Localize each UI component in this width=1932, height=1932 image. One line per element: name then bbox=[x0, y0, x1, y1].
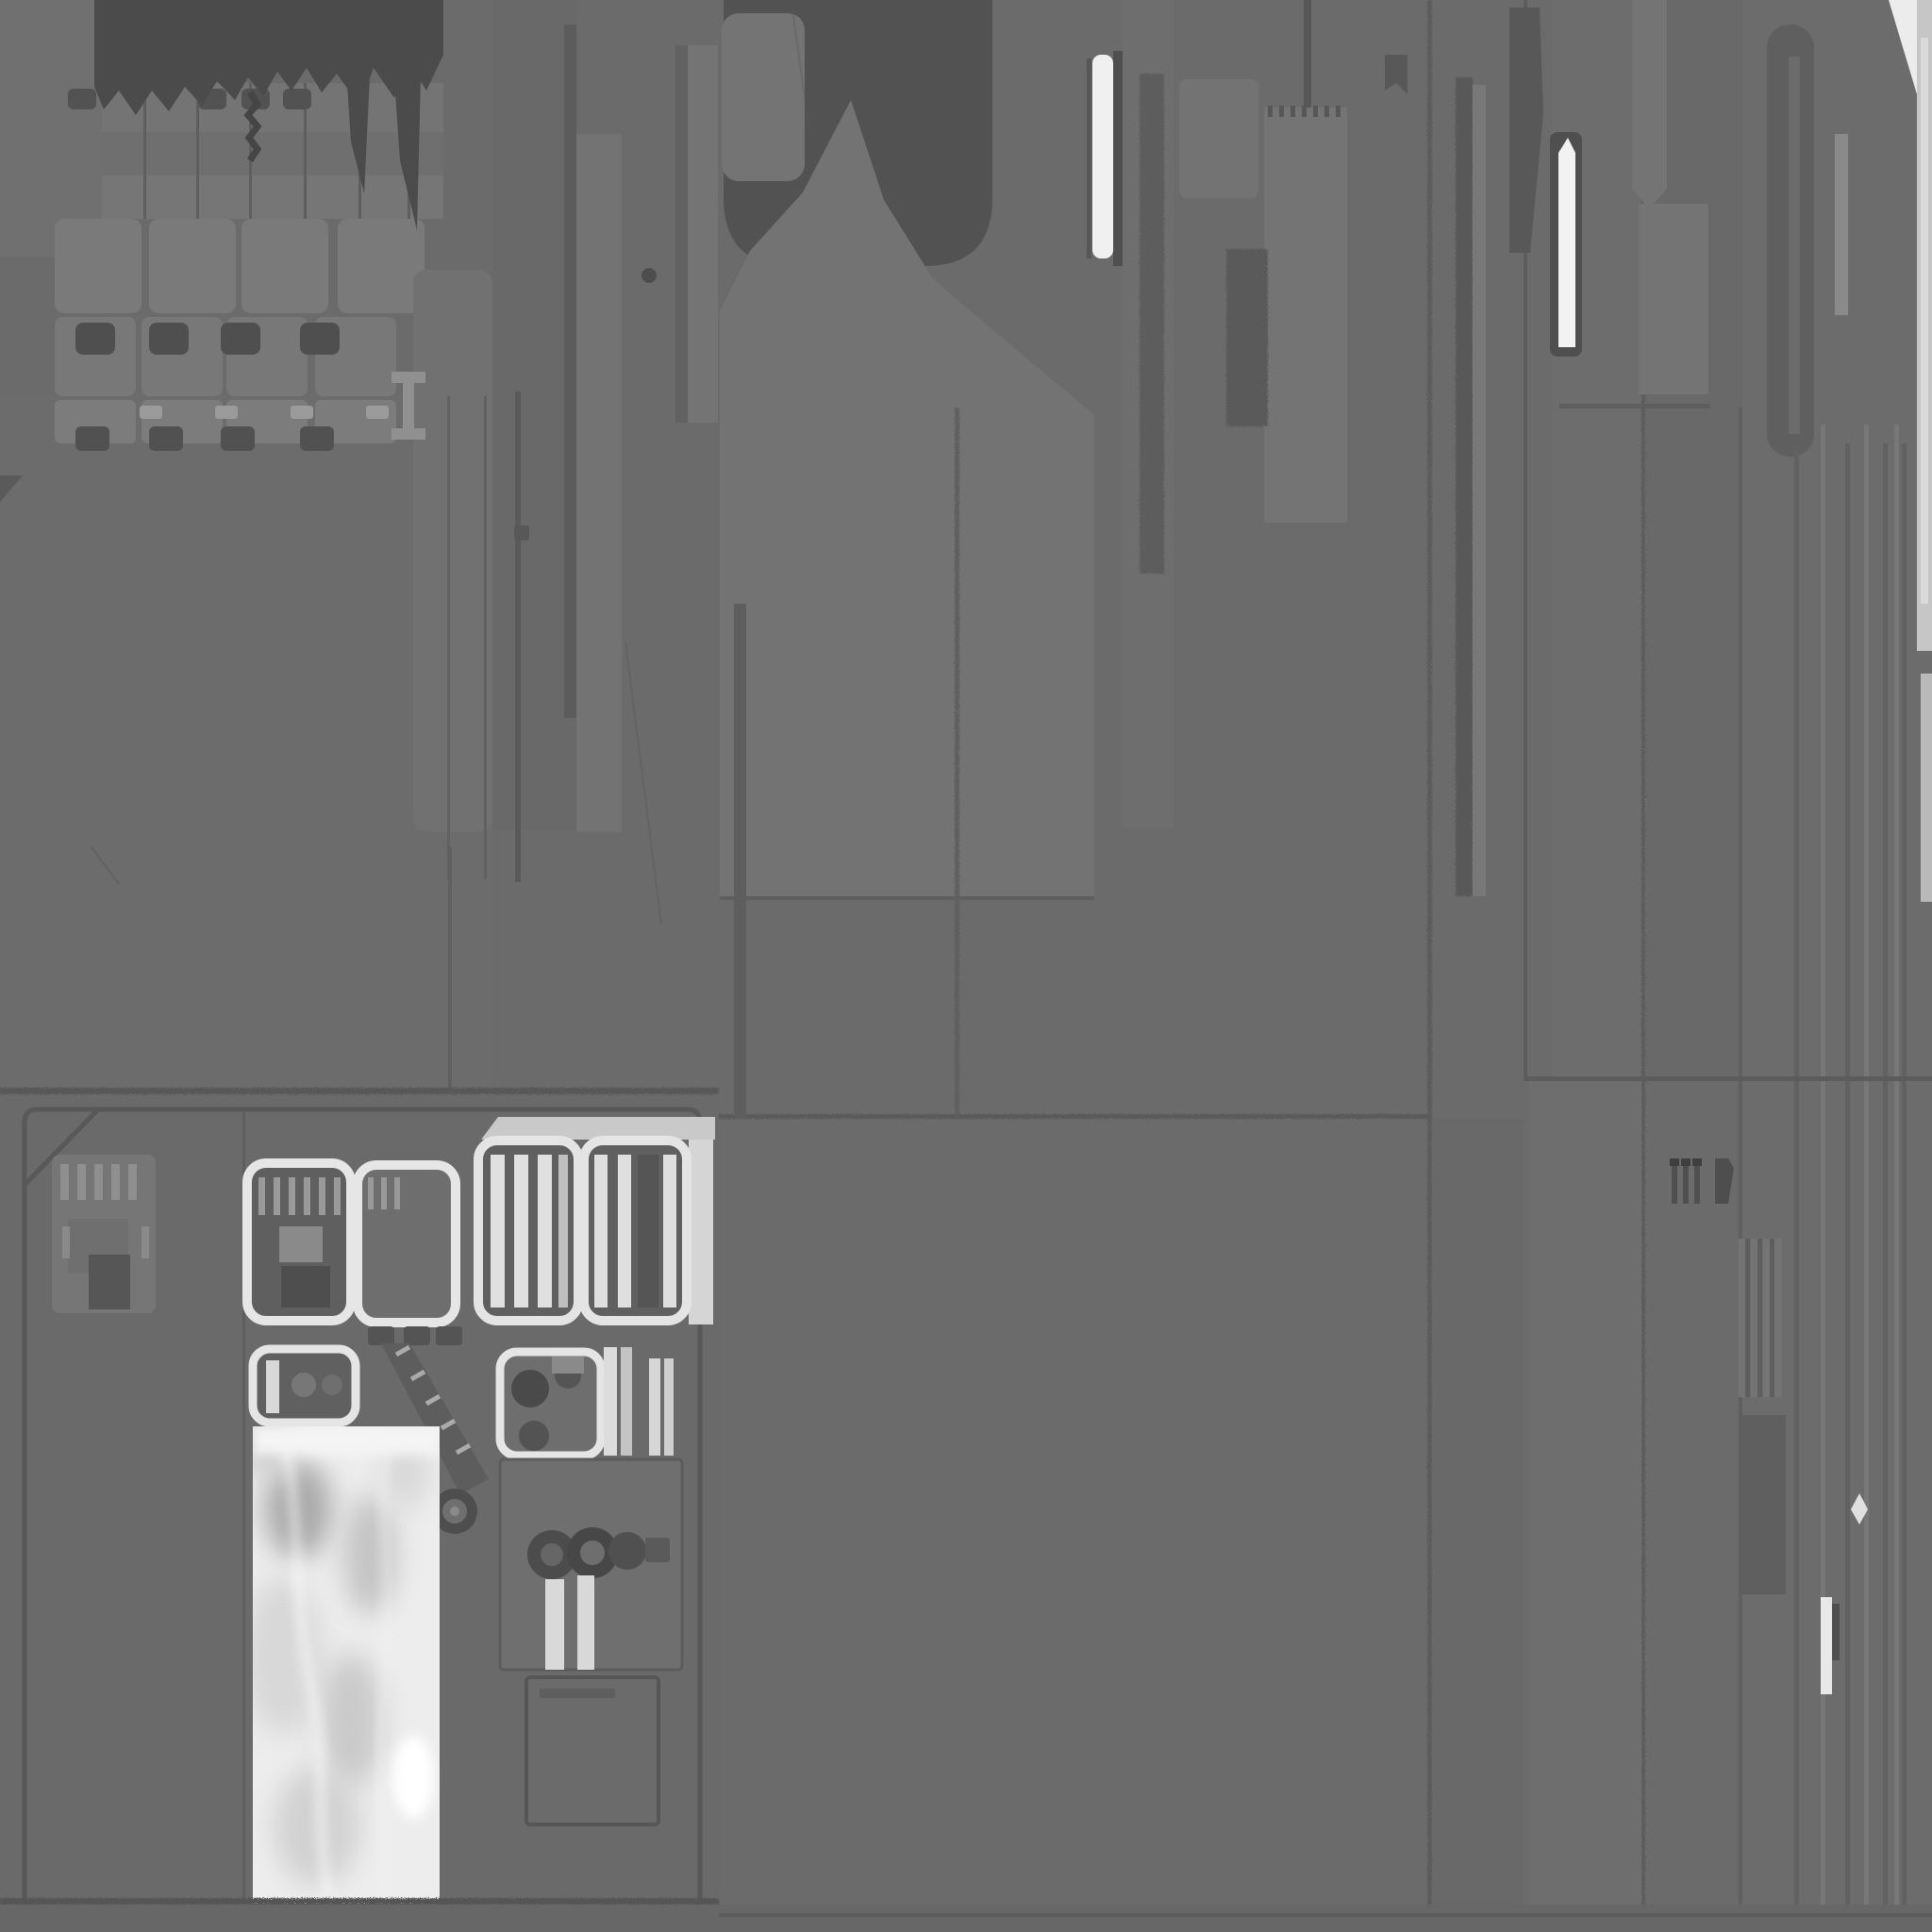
light-column-729 bbox=[688, 45, 718, 423]
flame-blob-3 bbox=[243, 1577, 323, 1736]
tray-5-knob-1 bbox=[291, 1373, 316, 1397]
small-bolt-caps bbox=[1670, 1158, 1679, 1166]
dot-row-c bbox=[221, 426, 255, 451]
column-below-1515 bbox=[1432, 1119, 1524, 1932]
vseam-778 bbox=[734, 604, 746, 1118]
plank-row-2 bbox=[102, 132, 443, 175]
dark-block-1845 bbox=[1740, 1415, 1786, 1594]
right-thin-strips-a bbox=[1883, 443, 1888, 1932]
tick-row-1340 bbox=[1302, 106, 1307, 117]
tray-2-bars bbox=[368, 1177, 374, 1209]
tray-3-slats bbox=[538, 1155, 552, 1307]
block-row-4 bbox=[55, 219, 142, 313]
control-knob-3 bbox=[608, 1532, 646, 1570]
vseam-1014 bbox=[955, 408, 959, 1117]
knob-inner bbox=[450, 1507, 459, 1516]
mountain-bottom-seam bbox=[720, 896, 1094, 900]
right-thin-strips-a bbox=[1794, 443, 1799, 1932]
tray-6 bbox=[500, 1352, 601, 1456]
dark-strip-1942 bbox=[1832, 1604, 1840, 1660]
light-strip-1561 bbox=[1473, 85, 1486, 896]
dot-row-a bbox=[283, 89, 311, 109]
big-block-1340 bbox=[1264, 108, 1347, 523]
texture-atlas-canvas bbox=[0, 0, 1932, 1932]
bottom-seam-left bbox=[0, 1898, 719, 1905]
scratchy-strip-1208 bbox=[1140, 74, 1164, 574]
circuit-module-bars bbox=[60, 1164, 69, 1200]
between-tray-bits bbox=[404, 1326, 430, 1345]
tray-4-slats bbox=[663, 1155, 676, 1307]
slat-column-right bbox=[689, 1140, 713, 1324]
small-bolt-caps bbox=[1681, 1158, 1690, 1166]
tray-1-bars bbox=[334, 1177, 341, 1215]
dot-row-b bbox=[221, 323, 260, 355]
right-thin-strips-b bbox=[1821, 425, 1825, 1932]
left-edge-light-column bbox=[0, 0, 102, 257]
tray-6-rect bbox=[552, 1357, 584, 1374]
right-col-bottom-seam bbox=[1559, 404, 1710, 408]
seam-x476 bbox=[447, 396, 450, 879]
strip-bundle-dark bbox=[1745, 1239, 1750, 1397]
screw-dot bbox=[641, 268, 657, 283]
light-column-1730 bbox=[1632, 0, 1667, 209]
tray-2-bars bbox=[381, 1177, 387, 1209]
tick-row-1340 bbox=[1268, 106, 1273, 117]
rounded-column-438 bbox=[413, 270, 492, 832]
tray-1-bars bbox=[319, 1177, 325, 1215]
block-1250 bbox=[1179, 79, 1258, 198]
dark-thin-column-598 bbox=[564, 25, 576, 718]
control-slat-1 bbox=[545, 1579, 564, 1670]
circuit-module-side-bars bbox=[142, 1226, 149, 1258]
flame-blob-6 bbox=[392, 1736, 434, 1819]
texture-atlas-stage bbox=[0, 0, 1932, 1932]
between-tray-bits bbox=[436, 1326, 462, 1345]
small-dark-square bbox=[514, 525, 529, 541]
scratchy-strip-1543 bbox=[1456, 77, 1473, 896]
tray-3-slat-light bbox=[558, 1155, 568, 1307]
light-gap-row bbox=[215, 406, 238, 419]
circuit-module-dark bbox=[89, 1255, 130, 1309]
small-bolt-caps bbox=[1692, 1158, 1702, 1166]
white-strip-1930 bbox=[1821, 1597, 1832, 1694]
workbench-top-seam bbox=[0, 1088, 719, 1094]
dot-row-b bbox=[75, 323, 115, 355]
tick-row-1340 bbox=[1279, 106, 1284, 117]
tray-1-bars bbox=[289, 1177, 295, 1215]
tick-row-1340 bbox=[1313, 106, 1318, 117]
arch-inner-strip bbox=[1789, 57, 1800, 434]
seam-x515 bbox=[484, 396, 487, 879]
white-slot-right bbox=[1558, 138, 1575, 347]
block-row-4 bbox=[149, 219, 236, 313]
slat-1945 bbox=[1835, 134, 1848, 315]
white-slot-top-center bbox=[1092, 55, 1113, 258]
slot-right-bar bbox=[1113, 51, 1123, 266]
tick-row-1340 bbox=[1291, 106, 1295, 117]
tray-4-dark-column bbox=[638, 1155, 658, 1307]
block-row-4 bbox=[338, 219, 425, 313]
light-column-611 bbox=[576, 134, 622, 832]
control-knob-2-inner bbox=[580, 1541, 605, 1565]
light-gap-row bbox=[291, 406, 313, 419]
tray-5-knob-2 bbox=[322, 1374, 342, 1395]
circuit-module-bars bbox=[128, 1164, 137, 1200]
right-thin-strips-b bbox=[1864, 425, 1869, 1932]
tray-4-slats bbox=[618, 1155, 631, 1307]
dot-row-a bbox=[68, 89, 96, 109]
tray-6-gear bbox=[519, 1421, 549, 1451]
hseam-y1143 bbox=[1527, 1076, 1932, 1081]
tick-row-1340 bbox=[1336, 106, 1341, 117]
flame-top-bright bbox=[253, 1426, 440, 1455]
strip-bundle-dark bbox=[1770, 1239, 1774, 1397]
dot-row-b bbox=[300, 323, 340, 355]
light-gap-row bbox=[140, 406, 162, 419]
rounded-block-767 bbox=[722, 13, 805, 181]
slat-704 bbox=[664, 1358, 674, 1456]
between-tray-bits bbox=[368, 1326, 394, 1345]
tray-4-slats bbox=[594, 1155, 608, 1307]
circuit-module-bars bbox=[94, 1164, 103, 1200]
slat-640 bbox=[604, 1347, 617, 1456]
tick-row-1340 bbox=[1324, 106, 1329, 117]
tray-1-bars bbox=[258, 1177, 265, 1215]
tray-5-slat bbox=[266, 1360, 279, 1413]
dot-row-c bbox=[300, 426, 334, 451]
circuit-module-side-bars bbox=[62, 1226, 70, 1258]
right-thin-strips-b bbox=[1894, 425, 1899, 1932]
dot-row-c bbox=[149, 426, 183, 451]
thin-column-716 bbox=[675, 45, 688, 423]
plank-row-3 bbox=[102, 175, 443, 219]
right-thin-strips-a bbox=[1902, 443, 1907, 1932]
shapes-root bbox=[0, 0, 1932, 1932]
right-edge-gradient-inner bbox=[1921, 38, 1928, 604]
scratchy-strip-1300 bbox=[1226, 249, 1268, 426]
small-bolts bbox=[1672, 1166, 1677, 1204]
small-bolts bbox=[1683, 1166, 1689, 1204]
small-bolts bbox=[1694, 1166, 1700, 1204]
right-thin-strips-a bbox=[1845, 443, 1850, 1932]
dot-row-b bbox=[149, 323, 189, 355]
control-knob-1-inner bbox=[541, 1543, 563, 1566]
tray-2-bars bbox=[394, 1177, 400, 1209]
slat-658 bbox=[621, 1347, 632, 1456]
vseam-477 bbox=[448, 847, 452, 1091]
plank-gap-lines bbox=[143, 83, 146, 219]
bottom-band bbox=[0, 1905, 1932, 1932]
tray-6-knob-1 bbox=[511, 1370, 549, 1407]
hseam-y1183 bbox=[703, 1114, 1431, 1119]
light-rect-1737 bbox=[1639, 204, 1708, 394]
tray-1-bars bbox=[304, 1177, 310, 1215]
seam-x549 bbox=[515, 391, 521, 882]
tray-1-dark bbox=[281, 1266, 330, 1307]
right-edge-strip-low bbox=[1921, 674, 1932, 902]
bottom-seam-right bbox=[719, 1913, 1932, 1917]
seam-x1515 bbox=[1427, 0, 1432, 1932]
sub-panel bbox=[526, 1677, 658, 1824]
control-slat-2 bbox=[577, 1575, 594, 1670]
tray-3-slats bbox=[514, 1155, 528, 1307]
tray-3-slats bbox=[491, 1155, 505, 1307]
seam-x1845 bbox=[1739, 408, 1742, 1932]
dot-row-c bbox=[75, 426, 109, 451]
light-gap-row bbox=[366, 406, 389, 419]
strip-bundle-light bbox=[1774, 1239, 1782, 1397]
tray-1-bars bbox=[274, 1177, 280, 1215]
circuit-module-bars bbox=[111, 1164, 120, 1200]
tray-1-mid bbox=[279, 1226, 323, 1262]
strip-bundle-dark bbox=[1757, 1239, 1762, 1397]
sub-panel-top-bar bbox=[540, 1689, 615, 1698]
circuit-module-bars bbox=[77, 1164, 86, 1200]
block-row-4 bbox=[241, 219, 328, 313]
slat-688 bbox=[649, 1358, 660, 1456]
slot-left-line bbox=[1087, 58, 1091, 258]
column-below-1620 bbox=[1529, 1081, 1641, 1932]
control-square bbox=[645, 1538, 670, 1562]
